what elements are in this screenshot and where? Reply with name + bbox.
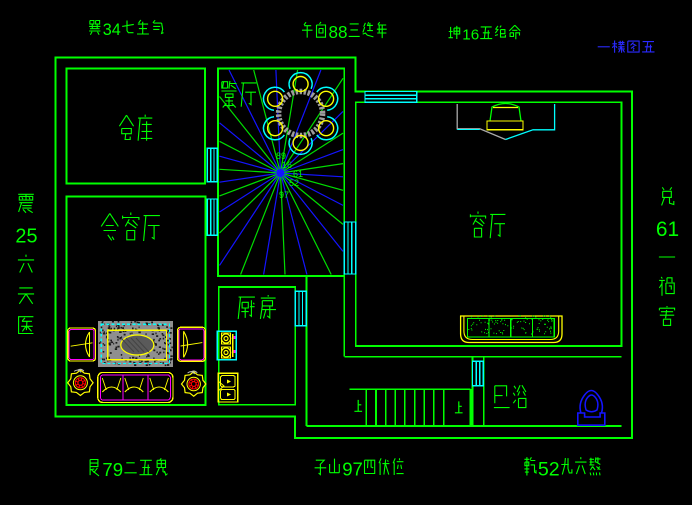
svg-text:97: 97 bbox=[342, 459, 363, 480]
svg-text:61: 61 bbox=[656, 218, 679, 241]
svg-text:16: 16 bbox=[282, 160, 292, 170]
svg-text:52: 52 bbox=[538, 459, 560, 481]
svg-text:34: 34 bbox=[103, 21, 121, 39]
svg-text:16: 16 bbox=[462, 27, 479, 44]
svg-text:52: 52 bbox=[289, 178, 299, 188]
svg-text:88: 88 bbox=[329, 23, 348, 42]
svg-text:25: 25 bbox=[15, 225, 37, 247]
svg-text:97: 97 bbox=[279, 190, 289, 200]
svg-text:79: 79 bbox=[102, 459, 123, 480]
